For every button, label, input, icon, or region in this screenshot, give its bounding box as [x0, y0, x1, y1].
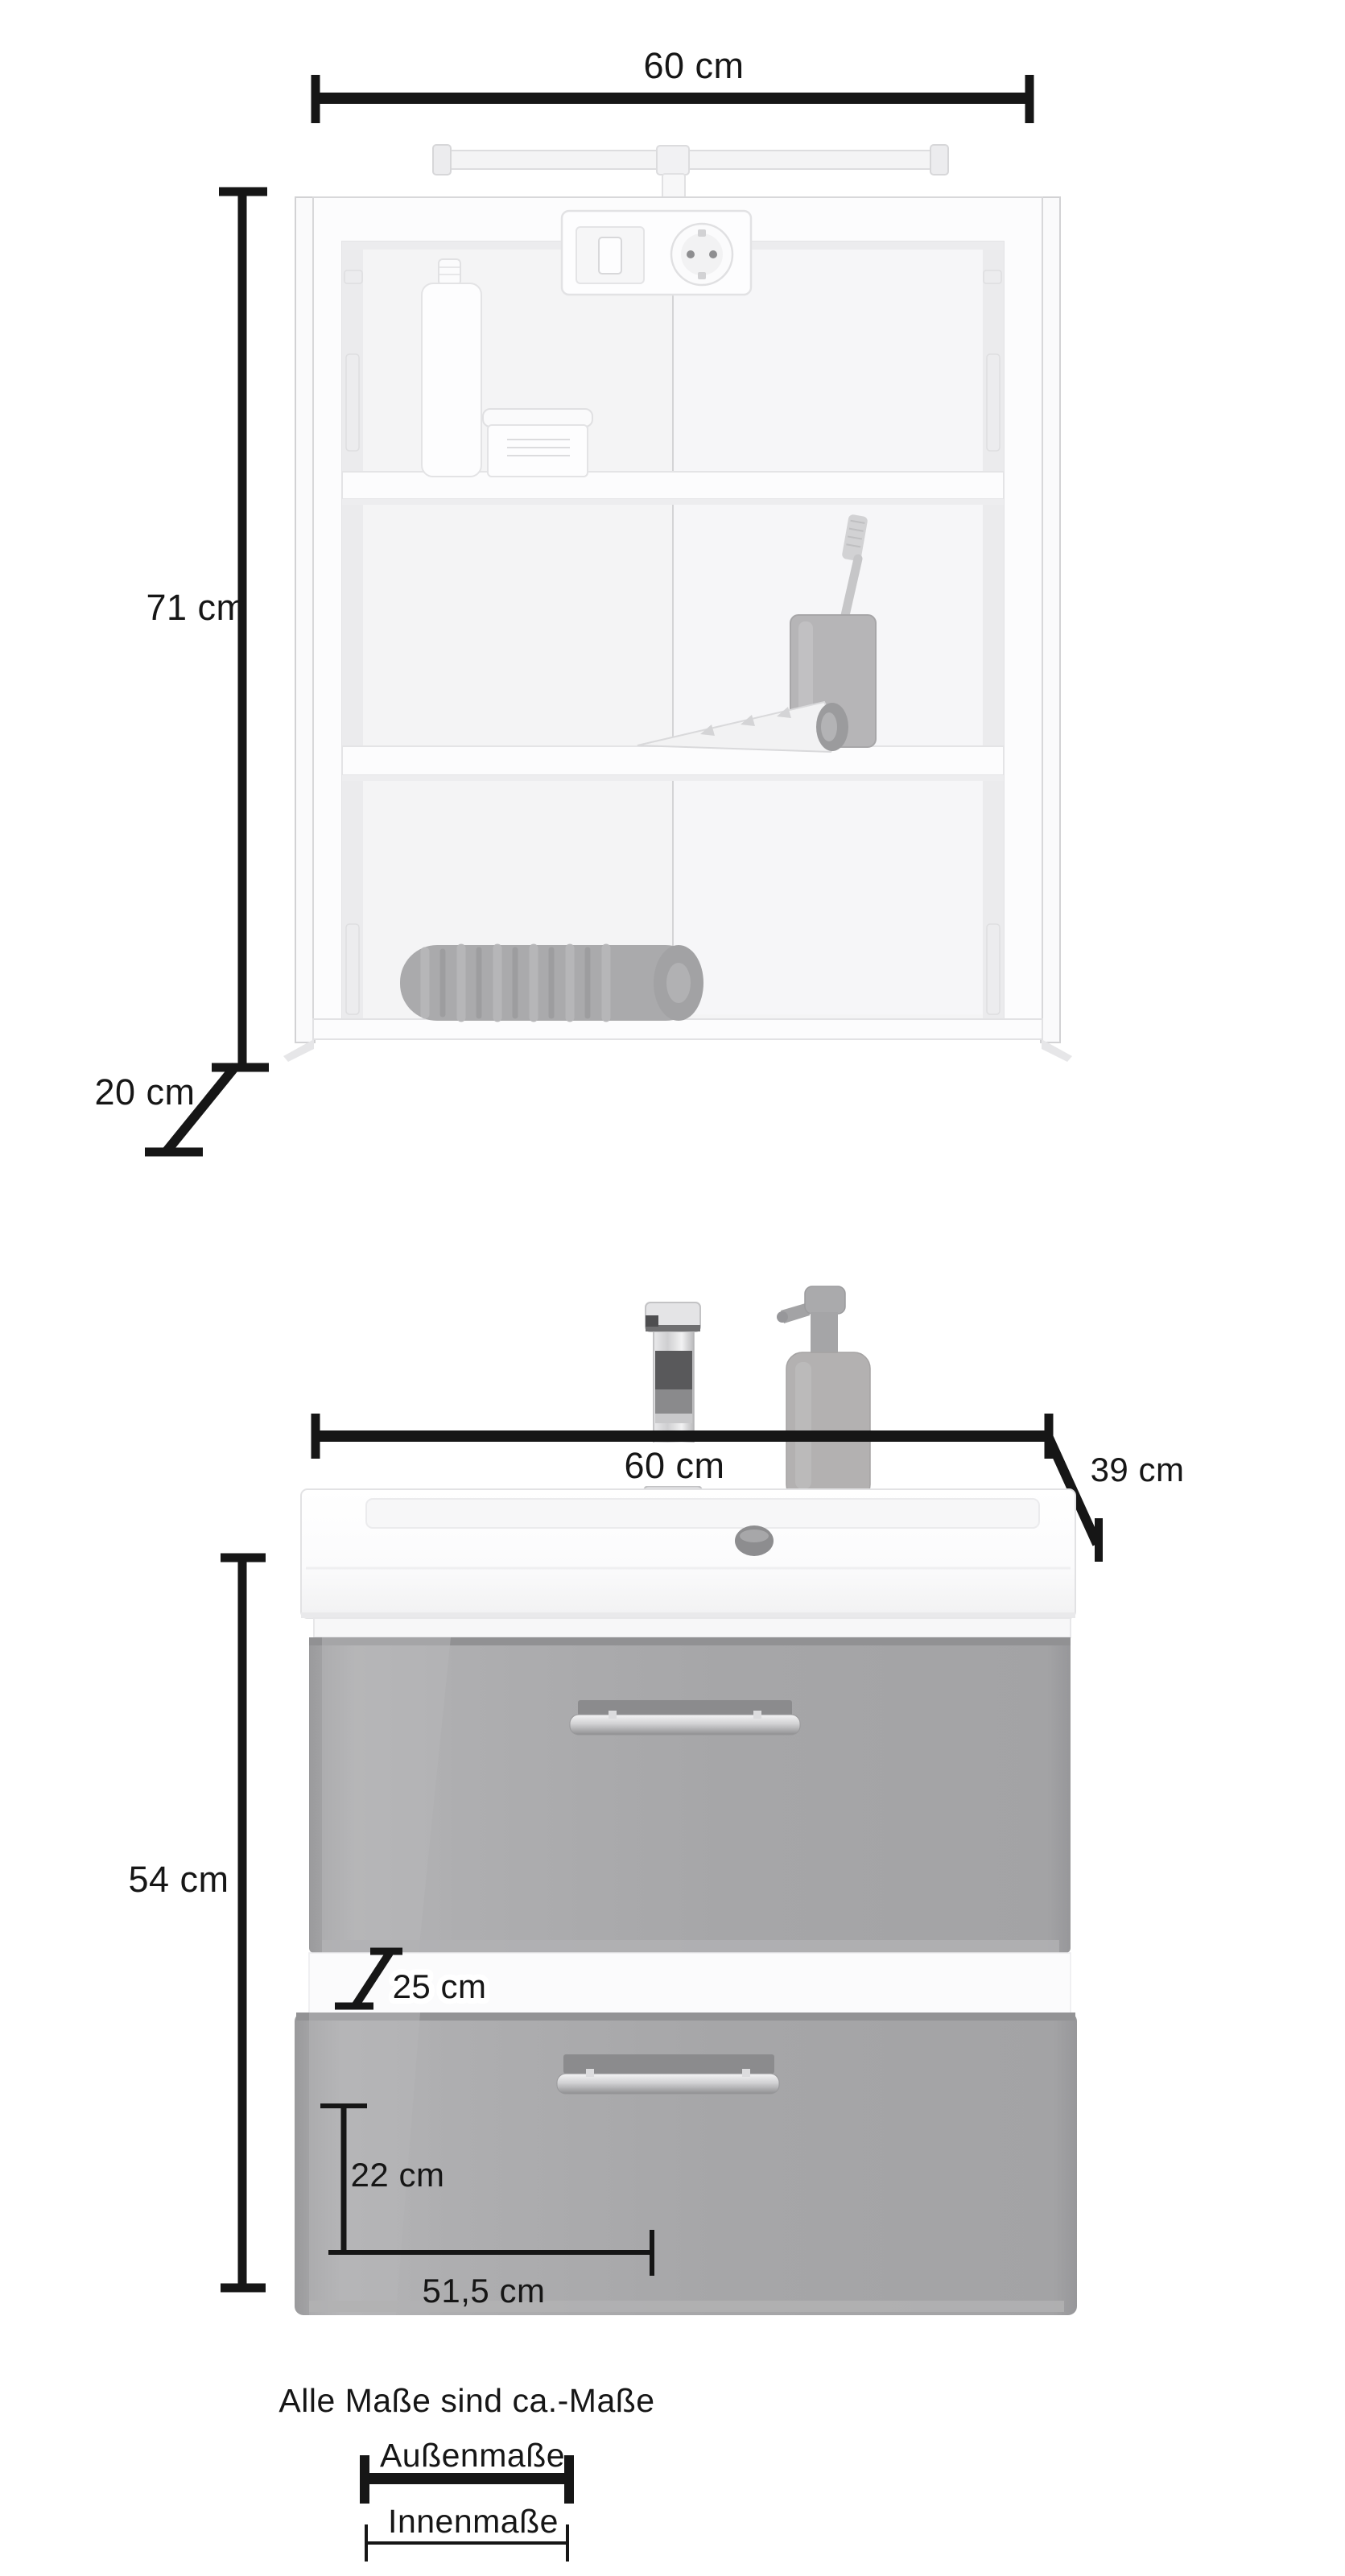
mirror-cabinet-body [283, 197, 1072, 1062]
drawer-1-handle [570, 1700, 800, 1735]
cosmetic-bottle [422, 259, 481, 477]
cream-jar [483, 409, 592, 477]
dimension-diagram: 60 cm [0, 0, 1345, 2576]
cabinet-bottom-rail [313, 1019, 1042, 1039]
vanity-depth-label: 39 cm [1091, 1451, 1185, 1488]
vanity-section: 60 cm 39 cm [128, 1286, 1184, 2315]
power-socket-module [562, 211, 751, 295]
inner-width-label: 51,5 cm [423, 2272, 546, 2310]
legend: Alle Maße sind ca.-Maße Außenmaße Innenm… [278, 2382, 654, 2562]
vanity-height-label: 54 cm [128, 1859, 229, 1900]
legend-outer-label: Außenmaße [380, 2437, 565, 2474]
rolled-towel [400, 945, 703, 1021]
mirror-cabinet-section: 60 cm [94, 45, 1072, 1152]
right-door-edge [1041, 197, 1060, 1042]
wash-basin [301, 1489, 1075, 1618]
legend-inner-label: Innenmaße [388, 2503, 559, 2540]
upper-width-label: 60 cm [643, 45, 744, 86]
upper-depth-label: 20 cm [94, 1071, 195, 1113]
soap-dispenser [777, 1286, 870, 1501]
left-door-edge [295, 197, 315, 1042]
drawer-2-handle [557, 2054, 779, 2094]
drawer-front-label: 25 cm [393, 1967, 487, 2005]
diagram-canvas: 60 cm [0, 0, 1345, 2576]
shelf-middle [342, 746, 1004, 781]
legend-note: Alle Maße sind ca.-Maße [278, 2382, 654, 2419]
upper-height-label: 71 cm [146, 587, 246, 628]
drawer-1 [309, 1637, 1071, 1953]
dimension-upper-height [219, 192, 267, 1067]
inner-height-label: 22 cm [351, 2156, 445, 2194]
dimension-vanity-height [221, 1558, 266, 2288]
vanity-width-label: 60 cm [624, 1445, 724, 1486]
vanity-top-rail [314, 1618, 1071, 1637]
